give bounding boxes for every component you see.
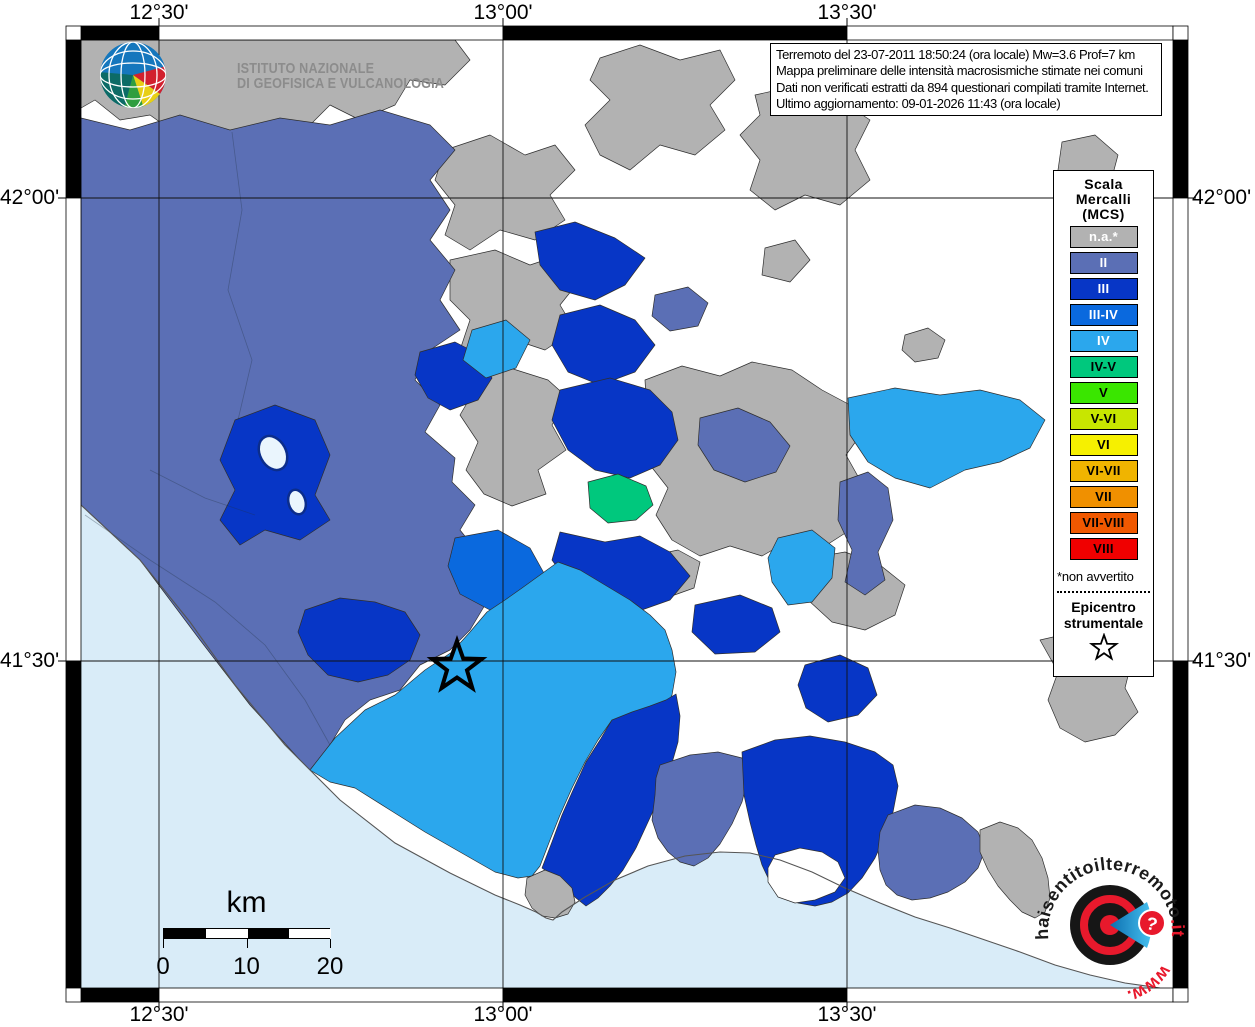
legend-epicenter-title: Epicentro strumentale [1054,599,1153,631]
ingv-macroseismic-map-page: { "header": { "ingv_line1": "ISTITUTO NA… [0,0,1255,1024]
legend-item-III: III [1070,278,1138,300]
scalebar-label: 20 [317,953,344,981]
epicenter-title-line: strumentale [1054,615,1153,631]
legend-item-IV: IV [1070,330,1138,352]
legend-item-VII: VII [1070,486,1138,508]
legend-title: Scala Mercalli (MCS) [1054,177,1153,222]
legend-item-VII-VIII: VII-VIII [1070,512,1138,534]
legend-item-V-VI: V-VI [1070,408,1138,430]
scalebar-tick [163,939,164,948]
ingv-institute-name: ISTITUTO NAZIONALE DI GEOFISICA E VULCAN… [237,61,444,91]
axis-label-bottom: 13°00' [473,1003,532,1027]
info-line-event: Terremoto del 23-07-2011 18:50:24 (ora l… [776,47,1156,63]
legend-title-line: Mercalli [1054,192,1153,207]
scalebar-label: 0 [156,953,169,981]
haisentito-watermark-logo: haisentitoilterremoto.it www. ? [1028,843,1192,1007]
scalebar-unit: km [163,886,330,920]
scale-bar: km 01020 [163,886,330,979]
scalebar-bar [163,928,330,939]
axis-label-right: 42°00' [1192,186,1251,210]
info-line-updated: Ultimo aggiornamento: 09-01-2026 11:43 (… [776,96,1156,112]
epicenter-title-line: Epicentro [1054,599,1153,615]
axis-label-bottom: 12°30' [129,1003,188,1027]
scalebar-segment [289,929,331,938]
legend-item-VI-VII: VI-VII [1070,460,1138,482]
legend-item-II: II [1070,252,1138,274]
axis-label-top: 12°30' [129,1,188,25]
axis-label-left: 42°00' [0,186,58,210]
axis-label-left: 41°30' [0,649,58,673]
scalebar-tick [247,939,248,948]
info-line-questionnaires: Dati non verificati estratti da 894 ques… [776,80,1156,96]
legend: Scala Mercalli (MCS) n.a.*IIIIIIII-IVIVI… [1053,170,1154,677]
ingv-name-line2: DI GEOFISICA E VULCANOLOGIA [237,76,444,91]
legend-item-n.a.*: n.a.* [1070,226,1138,248]
scalebar-label: 10 [233,953,260,981]
info-line-map-type: Mappa preliminare delle intensità macros… [776,63,1156,79]
legend-title-line: Scala [1054,177,1153,192]
axis-label-bottom: 13°30' [817,1003,876,1027]
axis-label-top: 13°30' [817,1,876,25]
municipality-intensity-III [220,405,330,545]
scalebar-tick [330,939,331,948]
legend-intensity-items: n.a.*IIIIIIII-IVIVIV-VVV-VIVIVI-VIIVIIVI… [1054,226,1153,560]
legend-item-VI: VI [1070,434,1138,456]
epicenter-star-icon [1087,633,1121,663]
watermark-www-text: www. [1125,961,1176,1006]
legend-footnote: *non avvertito [1054,569,1153,584]
axis-label-top: 13°00' [473,1,532,25]
ingv-globe-logo [98,40,168,110]
scalebar-segment [206,929,248,938]
globe-icon [100,42,166,108]
legend-divider [1057,591,1150,593]
earthquake-info-box: Terremoto del 23-07-2011 18:50:24 (ora l… [770,43,1162,116]
legend-item-IV-V: IV-V [1070,356,1138,378]
ingv-name-line1: ISTITUTO NAZIONALE [237,61,444,76]
axis-label-right: 41°30' [1192,649,1251,673]
legend-title-line: (MCS) [1054,207,1153,222]
legend-item-V: V [1070,382,1138,404]
scalebar-segment [164,929,206,938]
legend-item-III-IV: III-IV [1070,304,1138,326]
legend-star-glyph [1091,635,1116,659]
scalebar-segment [248,929,290,938]
legend-item-VIII: VIII [1070,538,1138,560]
scalebar-tick-labels: 01020 [163,953,330,979]
